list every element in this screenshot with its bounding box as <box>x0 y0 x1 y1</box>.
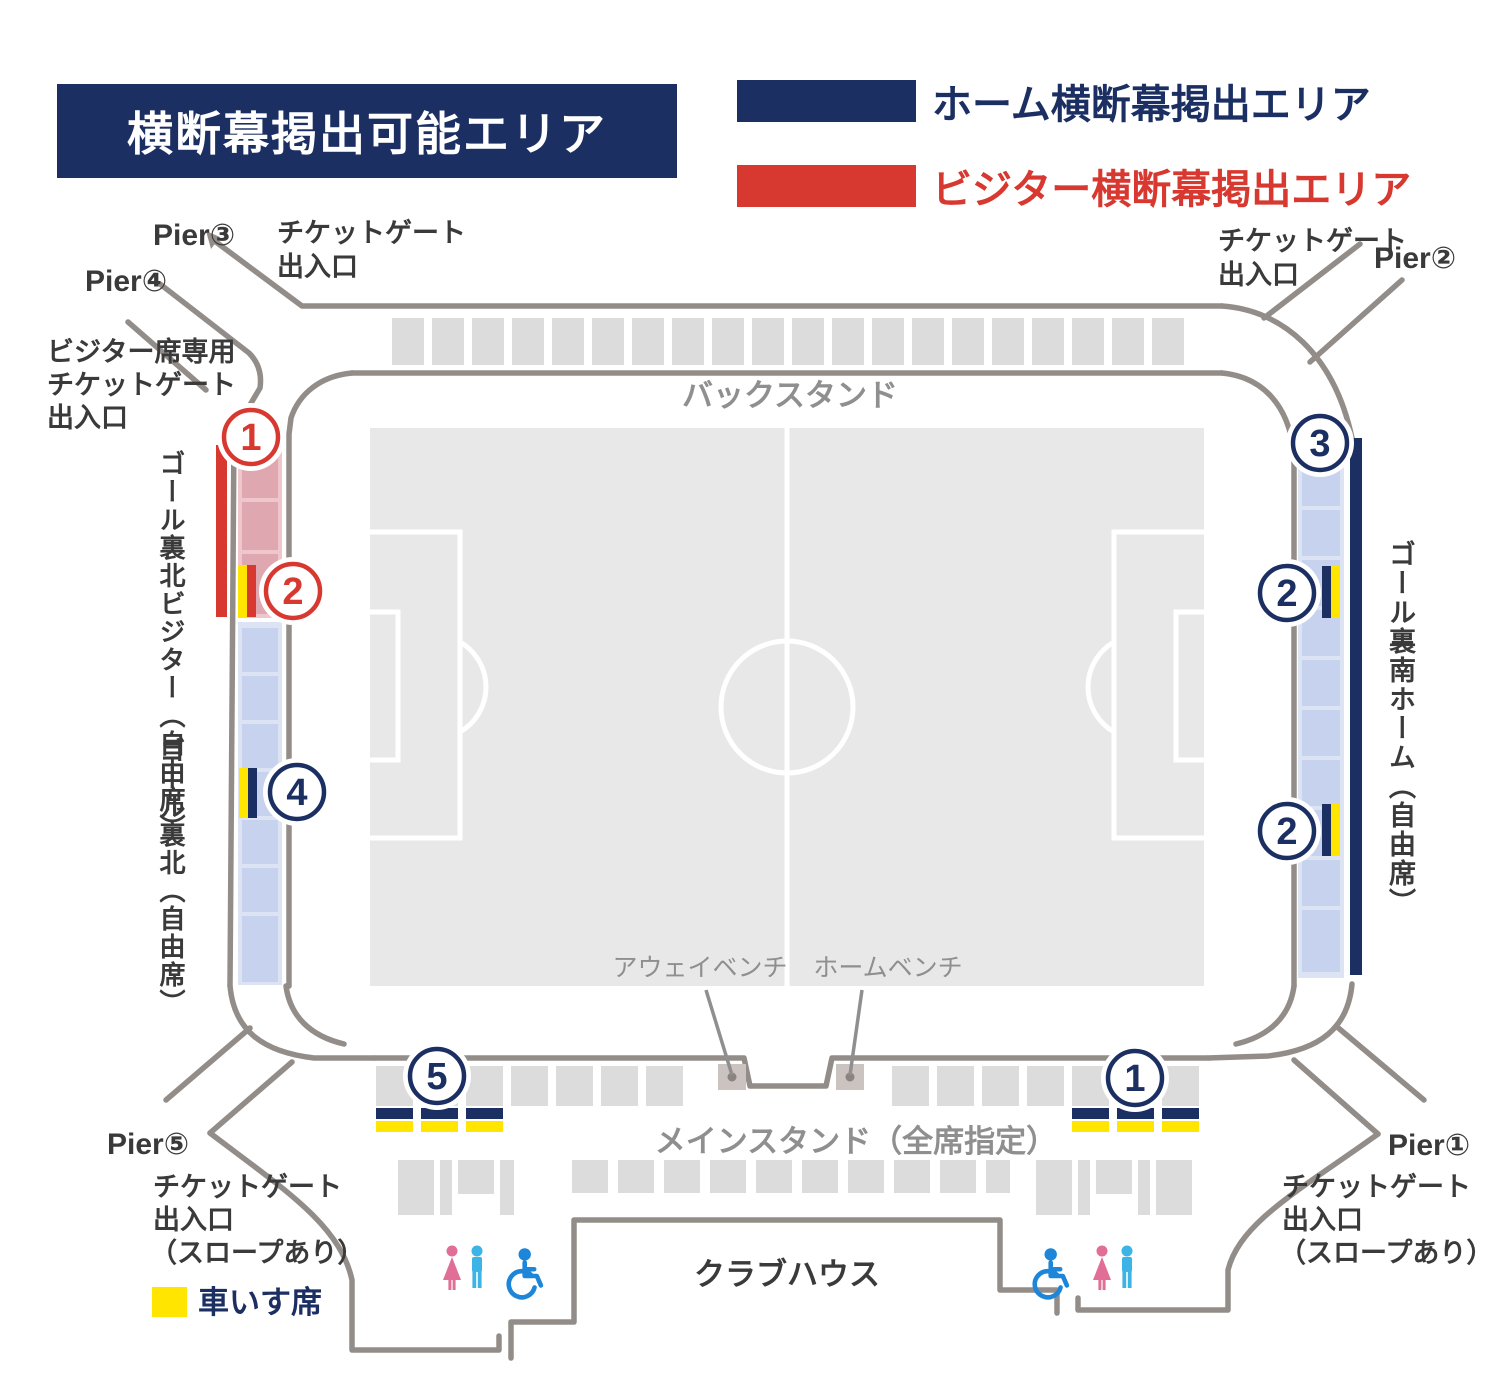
marker-home-2b: 2 <box>1253 797 1321 865</box>
marker-home-5: 5 <box>403 1042 471 1110</box>
svg-text:チケットゲート: チケットゲート <box>277 218 466 248</box>
home-banner-bar-3 <box>1350 438 1362 975</box>
svg-text:チケットゲート: チケットゲート <box>1282 1172 1471 1202</box>
main-stand-lower-blocks <box>398 1160 1192 1215</box>
wheelchair-icon <box>509 1248 541 1297</box>
pier4-label: Pier④ <box>85 265 167 298</box>
svg-text:5: 5 <box>426 1056 447 1098</box>
gate-label-visitor: ビジター席専用 チケットゲート 出入口 <box>47 336 236 433</box>
svg-text:出入口: 出入口 <box>1282 1205 1363 1235</box>
back-stand-blocks <box>392 318 1184 365</box>
svg-text:チケットゲート: チケットゲート <box>153 1172 342 1202</box>
wheelchair-seat-legend: 車いす席 <box>152 1285 322 1320</box>
svg-text:1: 1 <box>1124 1058 1145 1100</box>
away-bench-label: アウェイベンチ <box>612 954 787 982</box>
south-home-stand-label: ゴール裏南ホーム（自由席） <box>1385 539 1417 917</box>
clubhouse-label: クラブハウス <box>694 1257 880 1292</box>
home-banner-bar-4 <box>248 768 257 818</box>
pier1-label: Pier① <box>1388 1129 1470 1162</box>
visitor-banner-bar-2 <box>247 565 256 617</box>
main-stand-label: メインスタンド（全席指定） <box>655 1124 1057 1159</box>
svg-text:出入口: 出入口 <box>47 403 128 433</box>
svg-text:チケットゲート: チケットゲート <box>1218 226 1407 256</box>
svg-text:（スロープあり）: （スロープあり） <box>1279 1238 1493 1268</box>
marker-home-2a: 2 <box>1253 559 1321 627</box>
female-icon <box>443 1246 461 1291</box>
svg-text:3: 3 <box>1309 423 1330 465</box>
svg-text:2: 2 <box>282 571 303 613</box>
svg-text:4: 4 <box>286 772 307 814</box>
pier3-label: Pier③ <box>153 219 235 252</box>
home-banner-bar-2b <box>1322 804 1331 856</box>
svg-text:1: 1 <box>240 417 261 459</box>
wheelchair-seat-swatch <box>152 1287 187 1317</box>
wheelchair-seat-label: 車いす席 <box>198 1285 322 1320</box>
visitor-banner-bar-1 <box>216 445 227 617</box>
south-home-seats <box>1298 454 1344 978</box>
female-icon <box>1093 1246 1111 1291</box>
wheelchair-strip-left-home <box>239 768 248 818</box>
stadium-banner-map-page: 横断幕掲出可能エリア ホーム横断幕掲出エリア ビジター横断幕掲出エリア <box>0 0 1500 1386</box>
marker-visitor-1: 1 <box>217 403 285 471</box>
back-stand-label: バックスタンド <box>682 378 898 413</box>
marker-home-3: 3 <box>1286 409 1354 477</box>
male-icon <box>1122 1246 1133 1289</box>
marker-home-1: 1 <box>1101 1044 1169 1112</box>
pier5-label: Pier⑤ <box>107 1128 189 1161</box>
svg-text:2: 2 <box>1276 811 1297 853</box>
home-bench-label: ホームベンチ <box>813 954 962 982</box>
svg-text:出入口: 出入口 <box>277 252 358 282</box>
male-icon <box>472 1246 483 1289</box>
marker-visitor-2: 2 <box>259 557 327 625</box>
svg-text:ビジター席専用: ビジター席専用 <box>47 336 235 367</box>
gate-label-bottom-left: チケットゲート 出入口 （スロープあり） <box>150 1172 364 1268</box>
restroom-icons-left <box>443 1246 541 1298</box>
marker-home-4: 4 <box>263 758 331 826</box>
north-stand-label: ゴール裏北（自由席） <box>156 736 186 1017</box>
svg-text:出入口: 出入口 <box>153 1205 234 1235</box>
gate-label-bottom-right: チケットゲート 出入口 （スロープあり） <box>1279 1172 1493 1268</box>
wheelchair-strip-right-b <box>1331 804 1340 856</box>
svg-text:出入口: 出入口 <box>1218 260 1299 290</box>
stadium-map: アウェイベンチ ホームベンチ バックスタンド メインスタンド（全席指定） ゴール… <box>0 0 1500 1386</box>
svg-text:チケットゲート: チケットゲート <box>47 370 236 400</box>
svg-text:2: 2 <box>1276 573 1297 615</box>
home-banner-bar-2a <box>1322 566 1331 618</box>
svg-text:（スロープあり）: （スロープあり） <box>150 1238 364 1268</box>
gate-label-top-left: チケットゲート 出入口 <box>277 218 466 282</box>
wheelchair-strip-right-a <box>1331 566 1340 618</box>
wheelchair-strip-left-visitor <box>238 565 247 617</box>
pitch <box>370 428 1204 986</box>
